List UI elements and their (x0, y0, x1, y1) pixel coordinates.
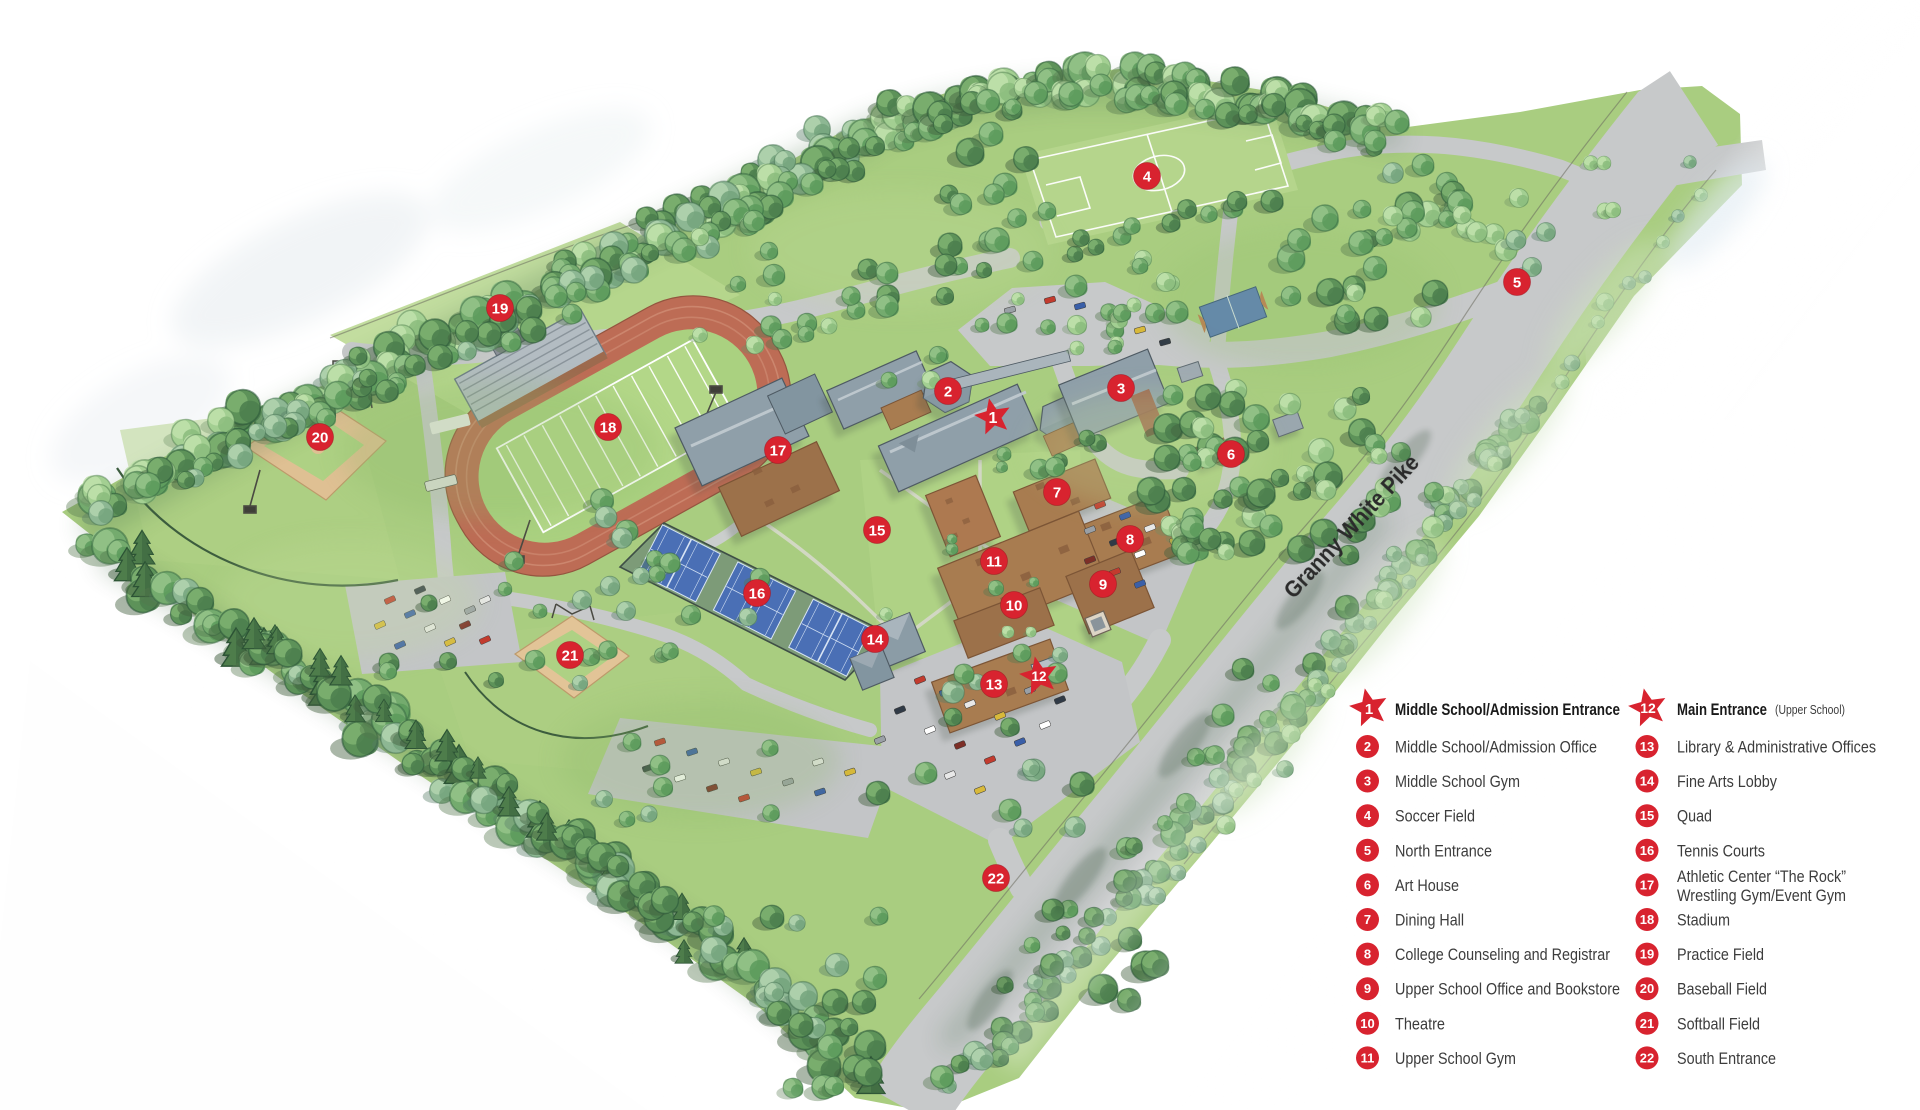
svg-text:15: 15 (869, 523, 886, 540)
svg-text:College Counseling and Registr: College Counseling and Registrar (1395, 945, 1610, 964)
svg-text:21: 21 (1640, 1016, 1654, 1031)
svg-text:7: 7 (1364, 912, 1371, 927)
svg-text:2: 2 (1364, 739, 1371, 754)
svg-text:3: 3 (1117, 381, 1125, 398)
svg-text:Wrestling Gym/Event Gym: Wrestling Gym/Event Gym (1677, 886, 1846, 905)
svg-text:Athletic Center “The Rock”: Athletic Center “The Rock” (1677, 867, 1846, 886)
svg-text:Soccer Field: Soccer Field (1395, 807, 1475, 826)
svg-text:Dining Hall: Dining Hall (1395, 911, 1464, 930)
svg-text:22: 22 (1640, 1050, 1654, 1065)
svg-text:17: 17 (770, 443, 787, 460)
svg-text:Art House: Art House (1395, 876, 1459, 895)
svg-text:Middle School/Admission Entran: Middle School/Admission Entrance (1395, 700, 1620, 719)
svg-text:Main Entrance: Main Entrance (1677, 700, 1767, 719)
svg-text:10: 10 (1360, 1016, 1374, 1031)
svg-text:Baseball Field: Baseball Field (1677, 980, 1767, 999)
svg-text:5: 5 (1364, 843, 1371, 858)
svg-text:6: 6 (1364, 877, 1371, 892)
svg-text:22: 22 (988, 871, 1005, 888)
svg-text:Library & Administrative Offic: Library & Administrative Offices (1677, 738, 1876, 757)
svg-text:11: 11 (1361, 1050, 1375, 1065)
svg-text:Stadium: Stadium (1677, 911, 1730, 930)
svg-text:21: 21 (562, 648, 579, 665)
svg-text:12: 12 (1640, 700, 1656, 716)
svg-text:7: 7 (1053, 485, 1061, 502)
svg-text:North Entrance: North Entrance (1395, 841, 1492, 860)
svg-text:4: 4 (1364, 808, 1372, 823)
svg-text:17: 17 (1640, 877, 1654, 892)
svg-text:20: 20 (312, 430, 329, 447)
svg-text:(Upper School): (Upper School) (1775, 702, 1845, 717)
svg-text:19: 19 (492, 301, 509, 318)
svg-text:16: 16 (749, 586, 766, 603)
svg-text:15: 15 (1640, 808, 1654, 823)
svg-text:Quad: Quad (1677, 807, 1712, 826)
svg-text:Softball Field: Softball Field (1677, 1014, 1760, 1033)
svg-text:Middle School Gym: Middle School Gym (1395, 772, 1520, 791)
svg-text:6: 6 (1227, 447, 1235, 464)
svg-text:13: 13 (986, 677, 1003, 694)
svg-text:Fine Arts Lobby: Fine Arts Lobby (1677, 772, 1777, 791)
svg-text:5: 5 (1513, 275, 1521, 292)
svg-text:14: 14 (867, 632, 884, 649)
svg-text:13: 13 (1640, 739, 1654, 754)
svg-text:16: 16 (1640, 843, 1654, 858)
svg-text:9: 9 (1364, 981, 1371, 996)
svg-text:8: 8 (1126, 532, 1134, 549)
svg-text:18: 18 (1640, 912, 1654, 927)
svg-text:South Entrance: South Entrance (1677, 1049, 1776, 1068)
svg-text:1: 1 (989, 410, 998, 427)
svg-text:11: 11 (986, 554, 1002, 571)
svg-text:14: 14 (1640, 774, 1655, 789)
svg-text:Middle School/Admission Office: Middle School/Admission Office (1395, 738, 1597, 757)
svg-text:3: 3 (1364, 774, 1371, 789)
svg-text:10: 10 (1006, 598, 1023, 615)
svg-text:Tennis Courts: Tennis Courts (1677, 841, 1765, 860)
svg-text:1: 1 (1365, 701, 1373, 718)
svg-text:9: 9 (1099, 577, 1107, 594)
svg-text:8: 8 (1364, 947, 1371, 962)
svg-text:19: 19 (1640, 947, 1654, 962)
svg-text:18: 18 (600, 420, 617, 437)
svg-text:12: 12 (1031, 669, 1046, 684)
svg-text:Upper School Gym: Upper School Gym (1395, 1049, 1516, 1068)
svg-text:20: 20 (1640, 981, 1654, 996)
svg-text:Practice Field: Practice Field (1677, 945, 1764, 964)
svg-text:Theatre: Theatre (1395, 1014, 1445, 1033)
svg-text:Upper School Office and Bookst: Upper School Office and Bookstore (1395, 980, 1620, 999)
svg-text:2: 2 (944, 384, 952, 401)
svg-text:4: 4 (1143, 169, 1152, 186)
